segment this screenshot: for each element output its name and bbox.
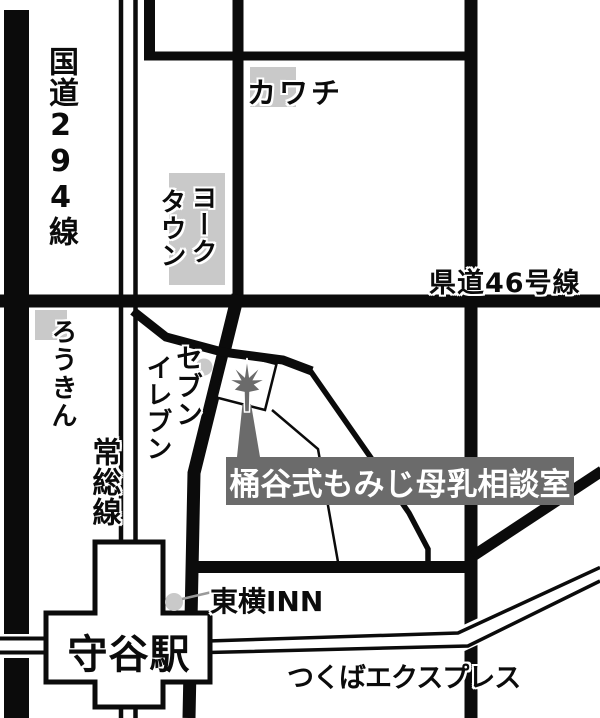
access-map: 国道294線 カワチ ヨーク タウン 県道46号線 ろうきん セブン イレブン … [0,0,600,718]
destination-label-box: 桶谷式もみじ母乳相談室 [226,457,574,505]
toyoko-inn-dot [165,593,183,611]
label-rokin: ろうきん [44,318,81,430]
label-joso-line: 常総線 [84,437,126,527]
label-prefectural-route-46: 県道46号線 [429,261,581,300]
label-seven-eleven-col-left: イレブン [139,354,176,462]
label-kawachi: カワチ [247,70,343,112]
label-toyoko-inn: 東横INN [210,580,323,620]
label-moriya-station: 守谷駅 [54,622,204,680]
label-york-town-col-left: タウン [153,188,190,269]
label-route-294: 国道294線 [38,46,82,247]
label-tsukuba-express: つくばエクスプレス [287,656,520,695]
destination-label-text: 桶谷式もみじ母乳相談室 [230,459,571,504]
